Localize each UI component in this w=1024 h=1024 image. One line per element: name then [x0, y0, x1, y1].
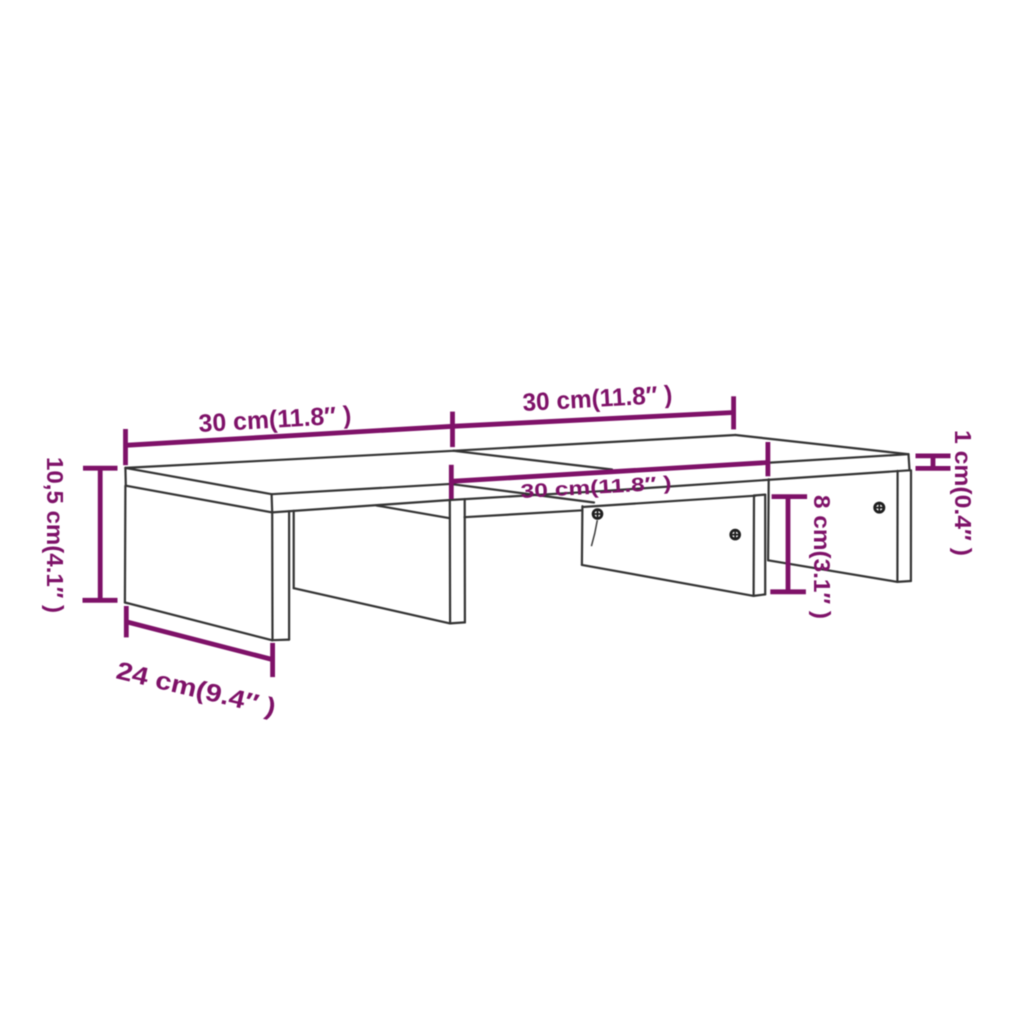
svg-text:10,5 cm(4.1″ ): 10,5 cm(4.1″ ) — [42, 457, 68, 613]
svg-text:8 cm(3.1″ ): 8 cm(3.1″ ) — [809, 495, 835, 619]
svg-text:1 cm(0.4″ ): 1 cm(0.4″ ) — [950, 430, 976, 556]
